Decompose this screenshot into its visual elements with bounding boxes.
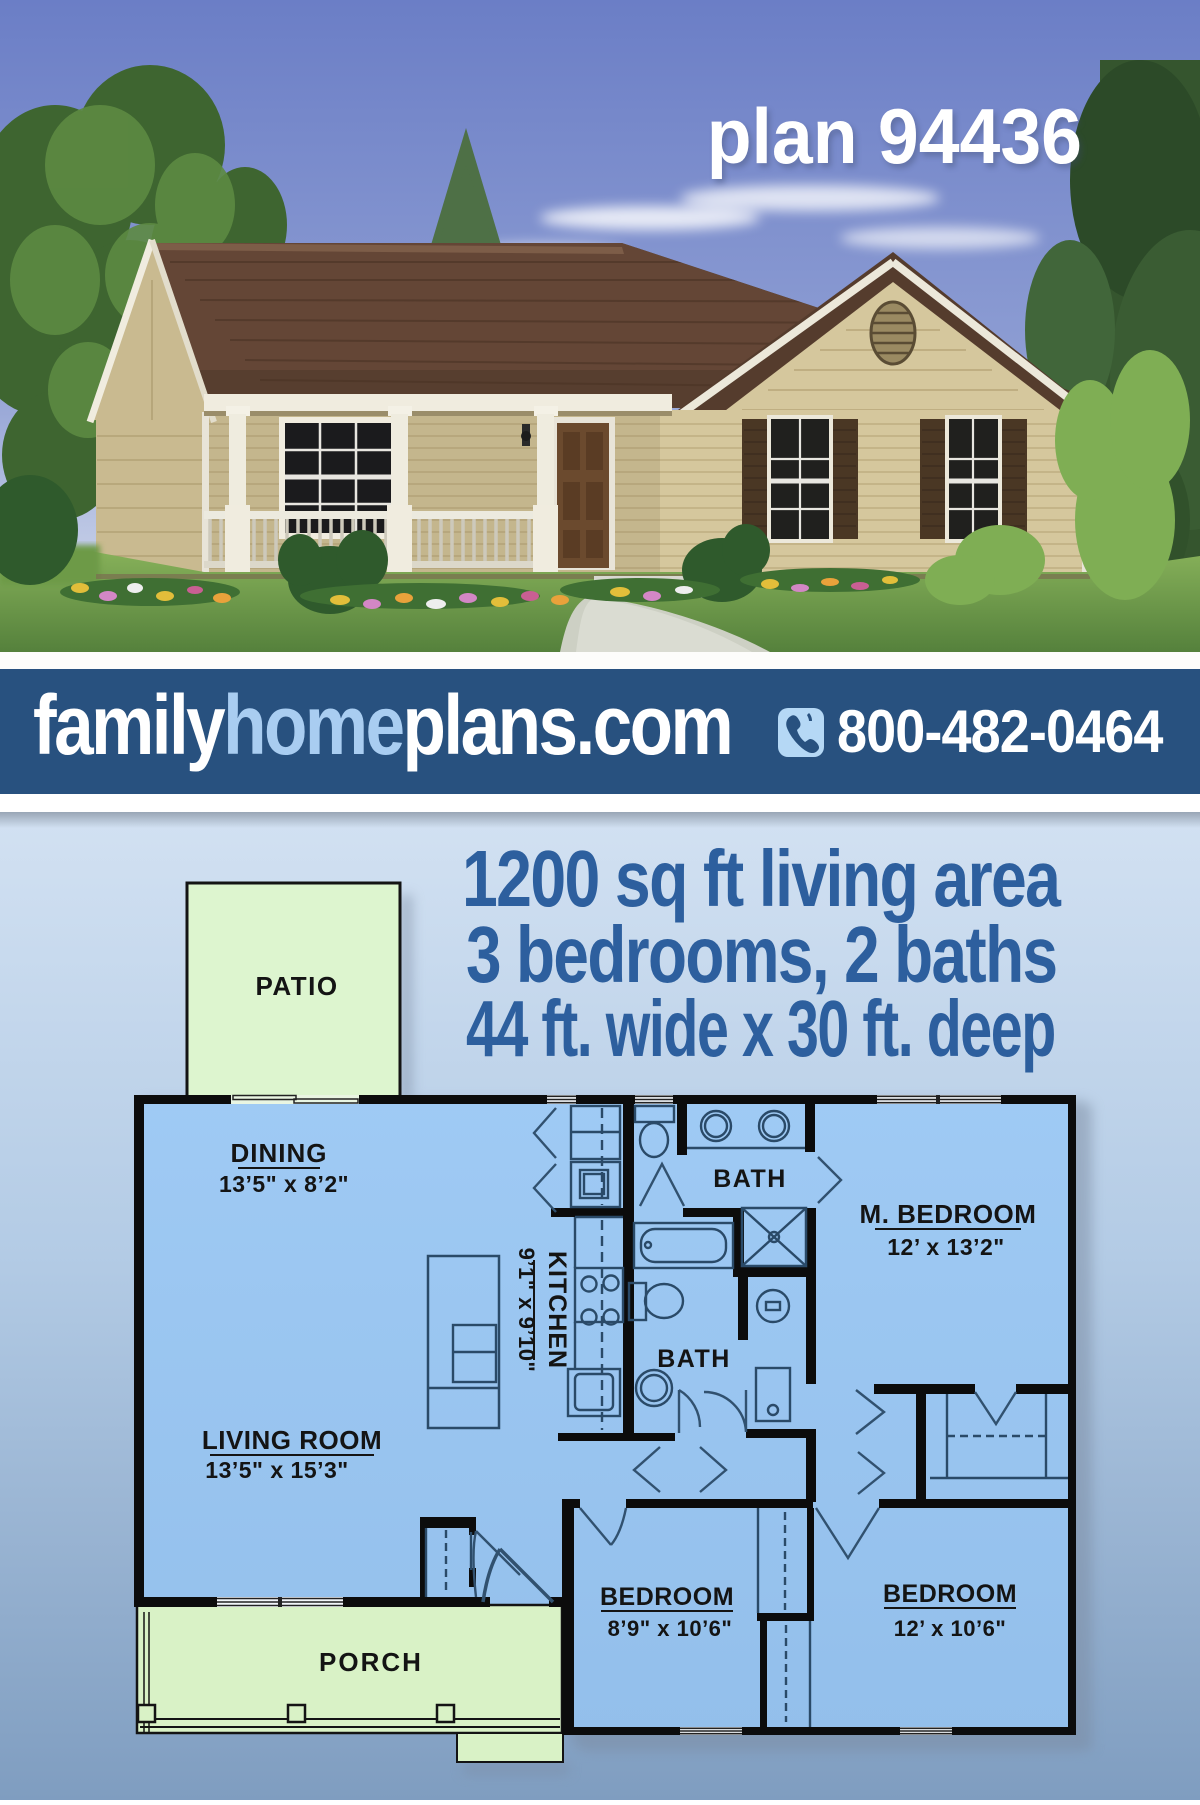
- svg-text:BATH: BATH: [713, 1165, 787, 1193]
- svg-text:8’9" x 10’6": 8’9" x 10’6": [608, 1616, 733, 1641]
- svg-text:PATIO: PATIO: [255, 971, 338, 1001]
- svg-text:BEDROOM: BEDROOM: [600, 1583, 734, 1611]
- svg-text:13’5" x 8’2": 13’5" x 8’2": [219, 1171, 349, 1197]
- svg-text:LIVING ROOM: LIVING ROOM: [202, 1425, 382, 1455]
- svg-text:M. BEDROOM: M. BEDROOM: [860, 1199, 1037, 1229]
- svg-text:13’5" x 15’3": 13’5" x 15’3": [205, 1457, 348, 1483]
- svg-text:BEDROOM: BEDROOM: [883, 1580, 1017, 1608]
- svg-text:12’ x 13’2": 12’ x 13’2": [887, 1234, 1004, 1260]
- svg-text:PORCH: PORCH: [319, 1647, 423, 1677]
- svg-text:12’ x 10’6": 12’ x 10’6": [894, 1616, 1007, 1641]
- svg-text:KITCHEN: KITCHEN: [543, 1251, 571, 1369]
- svg-text:9’1" x 9’10": 9’1" x 9’10": [514, 1248, 539, 1373]
- svg-text:DINING: DINING: [231, 1138, 328, 1168]
- svg-text:44 ft. wide x 30 ft. deep: 44 ft. wide x 30 ft. deep: [466, 984, 1055, 1074]
- svg-text:plan 94436: plan 94436: [707, 93, 1082, 181]
- svg-text:BATH: BATH: [657, 1345, 731, 1373]
